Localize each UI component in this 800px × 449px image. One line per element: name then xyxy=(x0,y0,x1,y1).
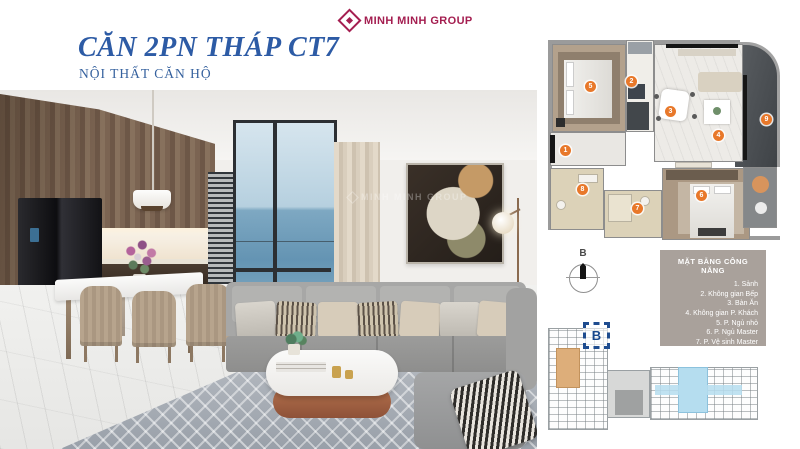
throw-pillow xyxy=(440,302,480,338)
throw-pillow xyxy=(399,301,441,340)
fp-kitchen-cabinet xyxy=(628,42,652,54)
fp-sink xyxy=(578,174,598,183)
interior-photo: MINH MINH GROUP xyxy=(0,90,537,449)
fp-tv-console xyxy=(678,49,736,56)
page-title: CĂN 2PN THÁP CT7 xyxy=(78,32,339,64)
fp-marker-1: 1 xyxy=(560,145,571,156)
table-leg xyxy=(66,295,71,359)
fp-marker-4: 4 xyxy=(713,130,724,141)
site-plan: B xyxy=(548,318,763,438)
fp-bed-bench xyxy=(698,228,726,236)
fp-marker-2: 2 xyxy=(626,76,637,87)
legend-item: 2. Không gian Bếp xyxy=(668,290,758,300)
fp-entry-door xyxy=(550,135,555,163)
window-blinds xyxy=(208,172,233,284)
fp-dining-chair xyxy=(692,114,697,119)
fp-armchair xyxy=(752,176,769,193)
fp-kitchen-counter xyxy=(627,102,649,130)
unit-b-box: B xyxy=(583,322,610,349)
refrigerator-display xyxy=(30,228,39,242)
brochure-page: CĂN 2PN THÁP CT7 NỘI THẤT CĂN HỘ MINH MI… xyxy=(0,0,800,449)
fp-marker-3: 3 xyxy=(665,106,676,117)
compass-north-label: B xyxy=(566,248,600,259)
legend-title: MẶT BẰNG CÔNG NĂNG xyxy=(668,257,758,275)
brand-logo: MINH MINH GROUP xyxy=(341,12,473,29)
fp-pillow xyxy=(566,62,574,87)
fp-marker-5: 5 xyxy=(585,81,596,92)
compass-needle-icon xyxy=(580,263,586,279)
watermark-diamond-icon xyxy=(346,191,359,204)
plant-pot xyxy=(288,344,300,355)
throw-pillow xyxy=(357,301,399,339)
fp-marker-8: 8 xyxy=(577,184,588,195)
site-highlight-unit xyxy=(556,348,580,388)
candle xyxy=(332,366,341,378)
legend-item: 3. Bàn Ăn xyxy=(668,299,758,309)
site-corridor-highlight xyxy=(655,385,742,395)
floorplan-image: 1 2 3 4 5 6 7 8 9 xyxy=(548,32,795,240)
pendant-lamp-inner xyxy=(141,206,163,211)
dining-chair xyxy=(132,291,176,347)
fp-pillow xyxy=(714,186,731,194)
fp-pillow xyxy=(566,90,574,115)
fp-marker-7: 7 xyxy=(632,203,643,214)
fp-wardrobe xyxy=(666,170,738,180)
throw-pillow xyxy=(318,302,358,338)
photo-watermark: MINH MINH GROUP xyxy=(348,192,518,202)
fp-marker-6: 6 xyxy=(696,190,707,201)
fp-toilet xyxy=(556,200,566,210)
fp-dining-chair xyxy=(656,116,661,121)
compass: B xyxy=(566,248,600,300)
book-stack xyxy=(276,362,326,372)
fp-marker-9: 9 xyxy=(761,114,772,125)
fp-table-plant xyxy=(713,107,721,115)
floor-lamp-globe xyxy=(492,212,514,234)
wall-art xyxy=(406,163,504,264)
pendant-cord xyxy=(152,90,154,192)
fp-side-table xyxy=(755,202,767,214)
diamond-icon xyxy=(337,8,361,32)
fp-dining-chair xyxy=(690,92,695,97)
fp-nightstand xyxy=(556,118,565,127)
fp-shower xyxy=(608,194,632,222)
legend-item: 1. Sảnh xyxy=(668,280,758,290)
dining-chair xyxy=(80,286,122,346)
dining-chair xyxy=(186,284,230,346)
site-mid-core xyxy=(615,390,643,415)
flower-bouquet xyxy=(117,237,163,277)
candle xyxy=(345,370,353,379)
throw-pillow xyxy=(235,301,277,340)
fp-dining-island xyxy=(658,88,690,122)
balcony-railing xyxy=(236,241,334,242)
page-subtitle: NỘI THẤT CĂN HỘ xyxy=(79,66,212,82)
fp-dining-chair xyxy=(654,94,659,99)
fp-window-lintel xyxy=(666,44,738,48)
brand-name: MINH MINH GROUP xyxy=(364,15,473,27)
fp-sofa xyxy=(698,72,742,92)
window-mullion-horizontal xyxy=(233,268,331,272)
